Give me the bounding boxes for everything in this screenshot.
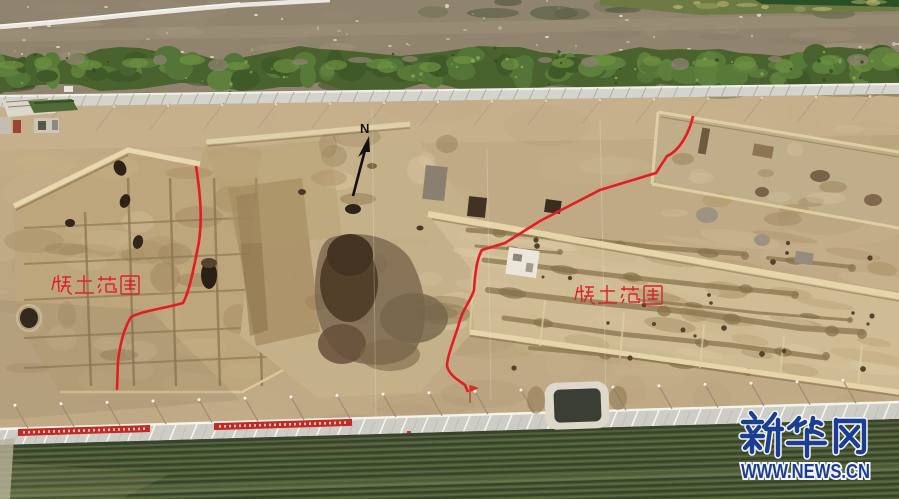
svg-text:N: N — [360, 121, 369, 136]
svg-text:WWW.NEWS.CN: WWW.NEWS.CN — [741, 461, 870, 483]
